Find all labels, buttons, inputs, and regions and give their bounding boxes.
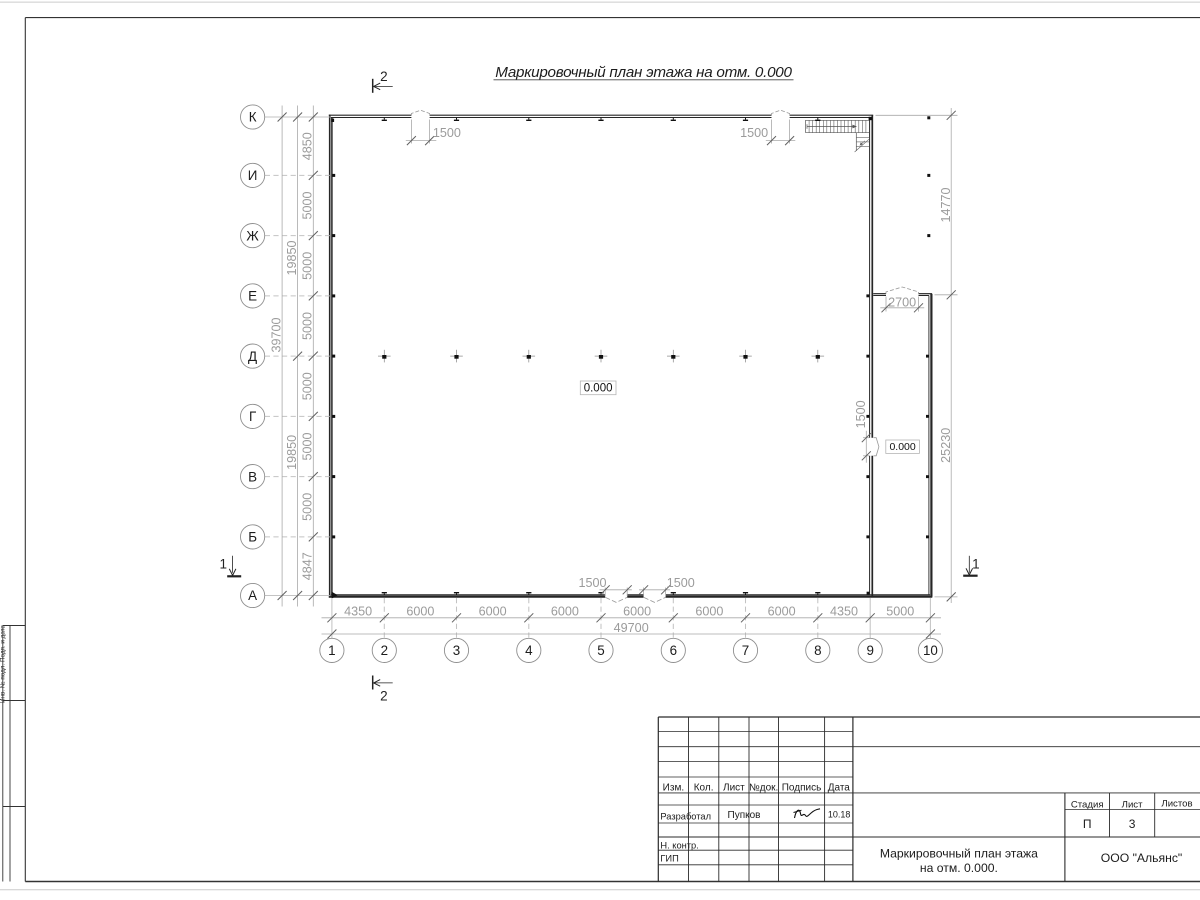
svg-text:Ж: Ж bbox=[246, 228, 259, 243]
svg-text:3: 3 bbox=[453, 643, 460, 658]
svg-text:1500: 1500 bbox=[578, 576, 606, 590]
svg-text:Инв. № подл. Подп. и дата: Инв. № подл. Подп. и дата bbox=[0, 624, 7, 703]
svg-text:5: 5 bbox=[597, 643, 604, 658]
svg-text:1500: 1500 bbox=[667, 576, 695, 590]
svg-text:Б: Б bbox=[248, 530, 257, 545]
svg-text:Кол.: Кол. bbox=[694, 782, 714, 793]
svg-text:Е: Е bbox=[248, 289, 257, 304]
svg-text:2700: 2700 bbox=[888, 296, 916, 310]
svg-text:5000: 5000 bbox=[886, 604, 914, 618]
svg-text:Изм.: Изм. bbox=[663, 782, 684, 793]
svg-text:5000: 5000 bbox=[300, 432, 314, 460]
svg-text:№док.: №док. bbox=[749, 782, 778, 793]
svg-text:5000: 5000 bbox=[300, 372, 314, 400]
svg-text:2: 2 bbox=[381, 643, 388, 658]
svg-text:1500: 1500 bbox=[854, 400, 868, 428]
svg-text:Маркировочный план этажа: Маркировочный план этажа bbox=[880, 847, 1038, 861]
svg-text:2: 2 bbox=[380, 69, 388, 84]
svg-text:Разработал: Разработал bbox=[660, 812, 711, 822]
svg-text:П: П bbox=[1083, 817, 1092, 831]
svg-text:19850: 19850 bbox=[285, 240, 299, 275]
svg-text:0.000: 0.000 bbox=[584, 383, 613, 395]
svg-text:Д: Д bbox=[248, 349, 257, 364]
svg-text:И: И bbox=[248, 168, 258, 183]
svg-text:5000: 5000 bbox=[300, 252, 314, 280]
svg-text:ГИП: ГИП bbox=[660, 854, 678, 864]
svg-text:6000: 6000 bbox=[406, 604, 434, 618]
svg-text:10: 10 bbox=[923, 643, 938, 658]
svg-text:9: 9 bbox=[866, 643, 873, 658]
svg-text:Пупков: Пупков bbox=[728, 810, 761, 821]
svg-text:Листов: Листов bbox=[1161, 799, 1192, 810]
svg-text:Лист: Лист bbox=[1122, 799, 1143, 810]
svg-text:2: 2 bbox=[380, 688, 388, 703]
svg-text:49700: 49700 bbox=[614, 621, 649, 635]
svg-text:Маркировочный план этажа на от: Маркировочный план этажа на отм. 0.000 bbox=[495, 64, 792, 81]
svg-text:1: 1 bbox=[972, 557, 980, 572]
svg-text:3: 3 bbox=[1129, 817, 1136, 831]
svg-text:ООО "Альянс": ООО "Альянс" bbox=[1101, 851, 1183, 865]
svg-text:Подпись: Подпись bbox=[782, 782, 822, 793]
svg-text:5000: 5000 bbox=[300, 312, 314, 340]
svg-text:Н. контр.: Н. контр. bbox=[660, 841, 698, 851]
svg-text:8: 8 bbox=[814, 643, 821, 658]
svg-text:Стадия: Стадия bbox=[1071, 799, 1104, 810]
svg-text:В: В bbox=[248, 469, 257, 484]
svg-text:Дата: Дата bbox=[828, 782, 851, 793]
svg-text:на отм. 0.000.: на отм. 0.000. bbox=[920, 861, 998, 875]
svg-text:25230: 25230 bbox=[939, 428, 953, 463]
svg-text:19850: 19850 bbox=[285, 435, 299, 470]
svg-text:5000: 5000 bbox=[300, 191, 314, 219]
svg-text:7: 7 bbox=[742, 643, 749, 658]
svg-text:1500: 1500 bbox=[433, 126, 461, 140]
svg-text:Г: Г bbox=[249, 409, 256, 424]
svg-text:6000: 6000 bbox=[768, 604, 796, 618]
svg-text:6: 6 bbox=[670, 643, 677, 658]
svg-text:5000: 5000 bbox=[300, 493, 314, 521]
svg-text:К: К bbox=[249, 110, 257, 125]
svg-text:4350: 4350 bbox=[830, 604, 858, 618]
svg-text:1: 1 bbox=[328, 643, 335, 658]
svg-text:4850: 4850 bbox=[300, 132, 314, 160]
svg-text:Лист: Лист bbox=[723, 782, 745, 793]
svg-text:4350: 4350 bbox=[344, 604, 372, 618]
svg-text:1500: 1500 bbox=[740, 126, 768, 140]
svg-text:1: 1 bbox=[220, 557, 228, 572]
svg-text:6000: 6000 bbox=[695, 604, 723, 618]
svg-text:6000: 6000 bbox=[623, 604, 651, 618]
svg-text:0.000: 0.000 bbox=[889, 441, 915, 453]
svg-text:6000: 6000 bbox=[479, 604, 507, 618]
svg-text:А: А bbox=[248, 588, 257, 603]
svg-text:10.18: 10.18 bbox=[828, 810, 851, 820]
svg-text:39700: 39700 bbox=[270, 317, 284, 352]
svg-text:4847: 4847 bbox=[300, 552, 314, 580]
svg-text:6000: 6000 bbox=[551, 604, 579, 618]
svg-text:4: 4 bbox=[525, 643, 533, 658]
svg-text:14770: 14770 bbox=[939, 187, 953, 222]
